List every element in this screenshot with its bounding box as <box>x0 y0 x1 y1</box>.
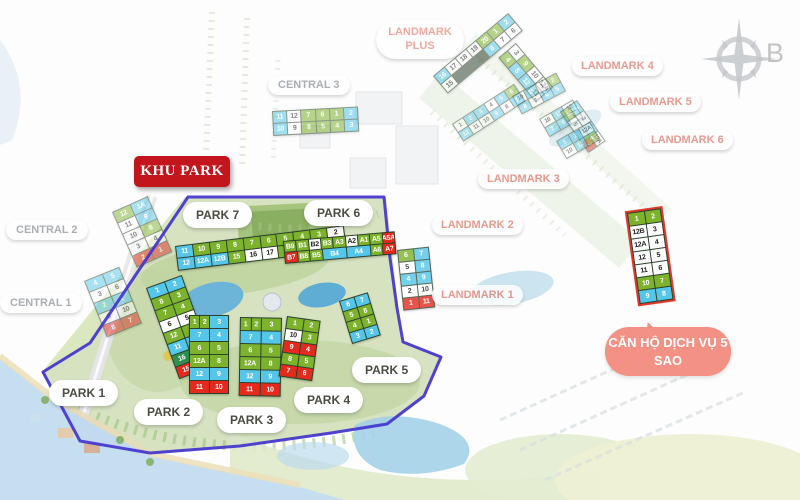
building-cell: B7 <box>285 252 297 263</box>
building-grid-landmark1: 675849210111 <box>397 247 435 311</box>
area-label-landmark-5[interactable]: LANDMARK 5 <box>610 92 701 112</box>
building-cell: B5 <box>310 250 322 261</box>
building-cell: 12 <box>178 257 195 270</box>
building-cell: B3 <box>321 238 333 249</box>
building-cell: 10 <box>285 329 302 342</box>
building-cell: B1 <box>296 240 308 251</box>
building-cell: A2 <box>345 236 357 247</box>
building-cell: 3 <box>344 120 358 132</box>
building-cell: 9 <box>210 368 229 380</box>
building-cell: 7 <box>301 110 315 122</box>
building-cell: 12 <box>190 368 209 380</box>
building-cell: 12A <box>632 237 649 251</box>
building-cell: 11 <box>635 263 652 277</box>
building-cell: 11 <box>190 381 209 393</box>
area-label-park-5[interactable]: PARK 5 <box>352 357 421 383</box>
building-grid-park-d: 12103948576 <box>279 316 321 381</box>
area-label-landmark-2[interactable]: LANDMARK 2 <box>432 215 523 235</box>
building-cell: 2 <box>344 108 358 120</box>
building-cell: 11 <box>273 111 287 123</box>
building-cell: 8 <box>302 122 316 134</box>
building-cell: 9 <box>260 370 280 382</box>
building-cell: 2 <box>303 319 320 332</box>
building-cell: 4 <box>401 273 417 285</box>
building-cell: 1 <box>330 108 344 120</box>
building-cell: 9 <box>210 241 227 254</box>
area-label-park-1[interactable]: PARK 1 <box>49 380 118 406</box>
building-cell: 9 <box>288 122 302 134</box>
building-cell: 11 <box>240 383 260 395</box>
building-cell: 9 <box>639 289 656 303</box>
building-cell: 12A <box>240 357 260 369</box>
building-cell: 4 <box>648 235 665 249</box>
building-cell: 4 <box>299 343 316 356</box>
building-grid-central1: 45362191087 <box>84 267 142 338</box>
building-cell: 1 <box>403 297 419 309</box>
area-label-park-7[interactable]: PARK 7 <box>183 202 252 228</box>
building-cell: 2 <box>402 285 418 297</box>
building-cell: 1 <box>190 316 199 328</box>
building-cell: 8 <box>210 355 229 367</box>
area-label-park-4[interactable]: PARK 4 <box>294 387 363 413</box>
building-cell: A3 <box>333 237 345 248</box>
building-cell: 7 <box>190 329 209 341</box>
building-cell: 5 <box>399 261 415 273</box>
building-cell: 6 <box>316 109 330 121</box>
building-cell: 7 <box>280 365 297 378</box>
building-cell: 7 <box>241 331 261 343</box>
building-cell: 10 <box>210 381 229 393</box>
building-cell: 10 <box>417 284 433 296</box>
building-cell: 8 <box>655 287 672 301</box>
building-cell: 2 <box>251 318 261 330</box>
building-cell: B9 <box>284 241 296 252</box>
area-label-park-3[interactable]: PARK 3 <box>217 407 286 433</box>
building-grid-service-apartments: 1212B312A412511610798 <box>627 208 673 304</box>
building-cell: 12 <box>240 370 260 382</box>
building-grid-park-e: 67584132 <box>339 292 381 344</box>
building-cell: A5A <box>382 232 394 243</box>
area-label-landmark-4[interactable]: LANDMARK 4 <box>572 56 663 76</box>
building-cell: 12 <box>634 250 651 264</box>
building-grid-park-c: 123746512A81291110 <box>239 317 282 397</box>
building-cell: 5 <box>316 121 330 133</box>
building-cell: 2 <box>364 325 380 339</box>
area-label-landmark-plus[interactable]: LANDMARK PLUS <box>376 20 464 59</box>
building-cell: 12A <box>194 255 211 268</box>
building-cell: 3 <box>646 222 663 236</box>
building-cell: 10 <box>274 123 288 135</box>
building-cell: 8 <box>226 239 243 252</box>
building-cell: 4 <box>261 331 281 343</box>
building-cell: 6 <box>260 235 277 248</box>
building-cell: 6 <box>190 342 209 354</box>
building-cell: 12B <box>211 253 228 266</box>
building-cell: 16 <box>245 249 262 262</box>
building-cell: 1 <box>628 212 645 226</box>
area-label-landmark-1[interactable]: LANDMARK 1 <box>432 285 523 305</box>
building-cell: 6 <box>652 261 669 275</box>
building-grid-central2: 121A1191083421 <box>112 196 172 268</box>
building-cell: 10 <box>637 276 654 290</box>
building-cell: 1 <box>286 317 303 330</box>
area-label-landmark-3[interactable]: LANDMARK 3 <box>478 169 569 189</box>
khu-park-badge[interactable]: KHU PARK <box>134 156 230 187</box>
building-cell: 9 <box>283 341 300 354</box>
building-cell: 6 <box>398 249 414 261</box>
building-grid-faded-2: 123456121110987 <box>452 84 525 142</box>
building-cell: 5 <box>298 355 315 368</box>
building-cell: 4 <box>210 329 229 341</box>
building-cell: 4 <box>330 120 344 132</box>
building-cell: 7 <box>414 248 430 260</box>
building-cell: 12A <box>190 355 209 367</box>
building-grid-central3: 111276121098543 <box>272 106 359 135</box>
building-cell: 10 <box>260 383 280 395</box>
building-cell: 1 <box>241 318 251 330</box>
building-cell: 3 <box>210 316 228 328</box>
building-cell: 3 <box>301 331 318 344</box>
building-cell: 17 <box>261 247 278 260</box>
building-cell: 12 <box>287 111 301 123</box>
building-grid-park-b: 123746512A81291110 <box>189 315 229 394</box>
building-cell: 3 <box>350 329 366 343</box>
area-label-landmark-6[interactable]: LANDMARK 6 <box>642 130 733 150</box>
building-cell: 12B <box>630 225 647 239</box>
building-cell: 3 <box>262 318 281 330</box>
building-cell: 11 <box>176 245 193 258</box>
building-cell: 6 <box>296 367 313 380</box>
building-cell: 15 <box>228 251 245 264</box>
area-label-central-1[interactable]: CENTRAL 1 <box>0 293 82 313</box>
building-cell: A5 <box>370 233 382 244</box>
building-cell: 2 <box>200 316 209 328</box>
building-cell: B4 <box>323 248 347 260</box>
building-cell: 7 <box>243 237 260 250</box>
building-cell: 7 <box>654 274 671 288</box>
building-cell: 2 <box>644 209 661 223</box>
building-cell: 5 <box>650 248 667 262</box>
building-cell: A1 <box>358 234 370 245</box>
building-cell: 5 <box>210 342 229 354</box>
building-cell: 8 <box>415 260 431 272</box>
building-cell: 6 <box>240 344 260 356</box>
building-cell: A6 <box>371 244 383 255</box>
building-cell: 8 <box>261 357 281 369</box>
masterplan-map: 111276121098543 121A1191083421 453621910… <box>0 0 800 500</box>
building-cell: 5 <box>261 344 281 356</box>
building-cell: B2 <box>309 239 321 250</box>
service-apartment-badge[interactable]: CĂN HỘ DỊCH VỤ 5 SAO <box>605 327 731 376</box>
building-cell: A4 <box>347 245 371 257</box>
compass-north-label: B <box>766 38 784 69</box>
area-label-central-3[interactable]: CENTRAL 3 <box>268 75 350 95</box>
building-cell: B8 <box>298 251 310 262</box>
area-label-park-6[interactable]: PARK 6 <box>304 200 373 226</box>
building-cell: A7 <box>383 243 395 254</box>
building-cell: 8 <box>281 353 298 366</box>
area-label-central-2[interactable]: CENTRAL 2 <box>6 220 88 240</box>
building-cell: 10 <box>193 243 210 256</box>
area-label-park-2[interactable]: PARK 2 <box>134 399 203 425</box>
building-cell: 9 <box>416 272 432 284</box>
